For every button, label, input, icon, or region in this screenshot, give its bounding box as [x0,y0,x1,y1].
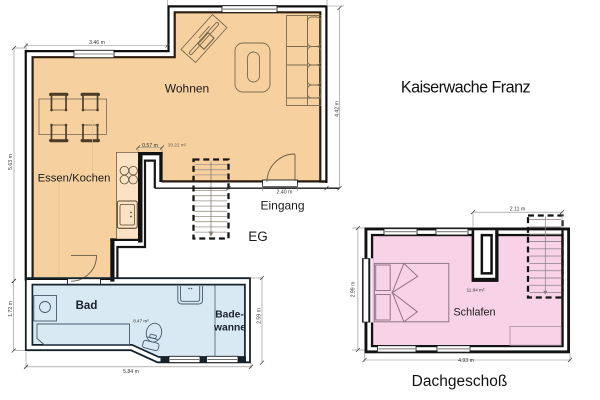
svg-text:1.72 m: 1.72 m [8,301,14,317]
svg-text:5.63 m: 5.63 m [8,154,14,170]
svg-text:Wohnen: Wohnen [165,82,209,96]
svg-text:Kaiserwache Franz: Kaiserwache Franz [401,79,531,97]
svg-text:4.93 m: 4.93 m [458,358,474,364]
svg-text:Eingang: Eingang [260,199,304,213]
svg-text:4.42 m: 4.42 m [335,101,341,117]
svg-text:EG: EG [248,229,268,244]
svg-text:30.22 m²: 30.22 m² [168,143,187,148]
svg-text:0.57 m: 0.57 m [142,143,158,149]
svg-text:3.46 m: 3.46 m [89,40,105,46]
svg-text:wanne: wanne [213,323,246,334]
svg-text:2.59 m: 2.59 m [257,308,263,324]
svg-text:Essen/Kochen: Essen/Kochen [38,173,111,185]
svg-text:Schlafen: Schlafen [453,307,495,319]
svg-text:Dachgeschoß: Dachgeschoß [412,373,508,390]
svg-text:2.99 m: 2.99 m [351,282,357,298]
svg-text:11.84 m²: 11.84 m² [467,288,485,293]
svg-text:8.47 m²: 8.47 m² [133,319,149,324]
svg-text:2.40 m: 2.40 m [277,190,293,196]
svg-text:5.84 m: 5.84 m [123,369,139,375]
svg-text:Bad: Bad [76,300,98,312]
svg-text:2.11 m: 2.11 m [510,207,525,213]
svg-text:Bade-: Bade- [215,310,244,321]
